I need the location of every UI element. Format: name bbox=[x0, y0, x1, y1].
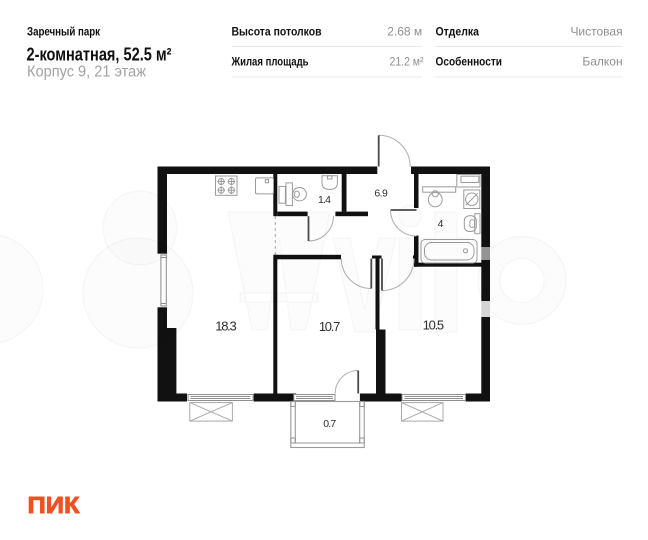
svg-text:Чистовая: Чистовая bbox=[570, 24, 622, 38]
svg-text:0.7: 0.7 bbox=[323, 418, 336, 430]
svg-text:Отделка: Отделка bbox=[436, 24, 480, 38]
svg-text:21.2 м²: 21.2 м² bbox=[390, 55, 424, 69]
svg-text:Балкон: Балкон bbox=[582, 55, 622, 69]
svg-text:10.7: 10.7 bbox=[319, 319, 341, 334]
svg-text:Корпус 9, 21 этаж: Корпус 9, 21 этаж bbox=[27, 64, 147, 81]
svg-text:Заречный парк: Заречный парк bbox=[27, 25, 101, 39]
svg-text:Жилая площадь: Жилая площадь bbox=[231, 55, 309, 69]
svg-text:ПИК: ПИК bbox=[28, 492, 81, 518]
svg-text:6.9: 6.9 bbox=[374, 188, 388, 200]
svg-text:18.3: 18.3 bbox=[215, 319, 237, 334]
svg-text:Особенности: Особенности bbox=[436, 55, 503, 69]
svg-text:1.4: 1.4 bbox=[318, 194, 331, 206]
svg-text:2-комнатная, 52.5 м²: 2-комнатная, 52.5 м² bbox=[27, 45, 172, 65]
svg-text:Высота потолков: Высота потолков bbox=[232, 24, 322, 38]
svg-text:2.68 м: 2.68 м bbox=[387, 24, 422, 38]
